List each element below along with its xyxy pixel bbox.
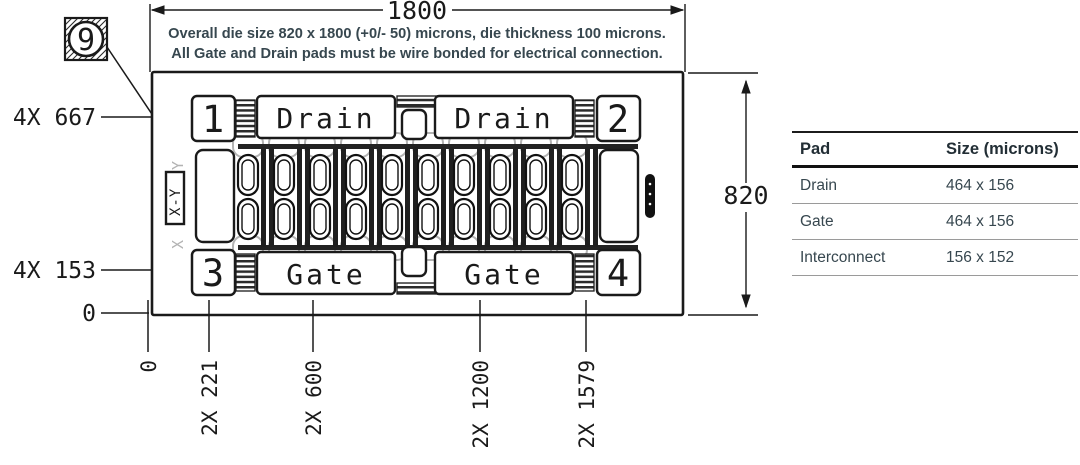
callout-0: 0 <box>82 301 96 327</box>
dim-height-label: 820 <box>723 181 768 210</box>
die-drawing-page: 1800 Overall die size 820 x 1800 (+0/- 5… <box>0 0 1080 465</box>
table-row: Interconnect156 x 152 <box>792 240 1078 276</box>
gate-finger <box>441 147 446 247</box>
bond-hatch-2 <box>575 100 594 137</box>
gate-finger <box>333 147 338 247</box>
gate-finger <box>413 147 418 247</box>
table-header-size: Size (microns) <box>946 140 1070 159</box>
right-interconnect-cap <box>600 150 638 242</box>
cell-pad-size: 156 x 152 <box>946 249 1070 267</box>
marker-dot <box>649 203 652 206</box>
contact-via-outer <box>526 199 546 239</box>
callout-153: 4X 153 <box>13 258 96 284</box>
bond-hatch-1 <box>236 100 255 137</box>
contact-via-outer <box>310 199 330 239</box>
center-interconnect-bottom <box>402 247 426 276</box>
marker-dot <box>649 193 652 196</box>
gate-finger <box>477 147 482 247</box>
contact-via-outer <box>274 155 294 195</box>
note-line-1: Overall die size 820 x 1800 (+0/- 50) mi… <box>168 26 666 42</box>
gate-finger <box>449 147 454 247</box>
contact-via-outer <box>382 199 402 239</box>
bond-hatch-4 <box>575 254 594 291</box>
die-layout-drawing: 1800 Overall die size 820 x 1800 (+0/- 5… <box>0 0 780 465</box>
contact-via-outer <box>490 199 510 239</box>
right-edge-marker-body <box>645 174 655 218</box>
cell-pad-size: 464 x 156 <box>946 213 1070 231</box>
gate-finger <box>405 147 410 247</box>
contact-via-outer <box>418 155 438 195</box>
alignment-ghost-x: X <box>169 240 187 249</box>
ordinate-label: 0 <box>137 360 161 373</box>
bottom-ordinate-dimensions: 02X 2212X 6002X 12002X 1579 <box>137 300 599 449</box>
cell-pad-size: 464 x 156 <box>946 177 1070 195</box>
bond-hatch-3 <box>236 254 255 291</box>
ordinate-label: 2X 221 <box>198 360 222 436</box>
left-interconnect-cap <box>196 150 234 242</box>
contact-via-outer <box>274 199 294 239</box>
center-interconnect-top <box>402 110 426 139</box>
contact-via-outer <box>238 199 258 239</box>
pad-3-label: 3 <box>202 252 224 295</box>
contact-via-outer <box>526 155 546 195</box>
contact-via-outer <box>346 199 366 239</box>
balloon-label: 9 <box>77 23 95 58</box>
drain-pad-left-label: Drain <box>276 102 375 135</box>
gate-finger <box>377 147 382 247</box>
gate-finger <box>521 147 526 247</box>
table-row: Gate464 x 156 <box>792 204 1078 240</box>
contact-via-outer <box>562 199 582 239</box>
table-body: Drain464 x 156Gate464 x 156Interconnect1… <box>792 168 1078 276</box>
pad-4-label: 4 <box>607 252 629 295</box>
contact-via-outer <box>454 155 474 195</box>
contact-via-outer <box>562 155 582 195</box>
alignment-ghost-y: Y <box>169 161 187 170</box>
gate-finger <box>513 147 518 247</box>
gate-finger <box>261 147 266 247</box>
table-header-row: Pad Size (microns) <box>792 133 1078 168</box>
gate-pad-right-label: Gate <box>464 258 543 291</box>
pad-size-table: Pad Size (microns) Drain464 x 156Gate464… <box>792 131 1078 276</box>
alignment-mark-label: X-Y <box>168 188 184 216</box>
pad-1-label: 1 <box>202 98 224 141</box>
contact-via-outer <box>346 155 366 195</box>
table-header-pad: Pad <box>800 140 946 159</box>
ordinate-label: 2X 1579 <box>575 360 599 449</box>
contact-via-outer <box>382 155 402 195</box>
die-body: 1 2 3 4 Drain Drain Gate Gate Y X <box>152 72 683 315</box>
ordinate-label: 2X 600 <box>302 360 326 436</box>
drain-pad-right-label: Drain <box>454 102 553 135</box>
contact-via-outer <box>454 199 474 239</box>
pad-2-label: 2 <box>607 98 629 141</box>
center-hatch-bottom <box>397 283 437 294</box>
table-row: Drain464 x 156 <box>792 168 1078 204</box>
gate-finger <box>369 147 374 247</box>
ordinate-label: 2X 1200 <box>469 360 493 449</box>
contact-via-outer <box>490 155 510 195</box>
contact-via-outer <box>238 155 258 195</box>
gate-finger <box>297 147 302 247</box>
gate-finger <box>593 147 598 247</box>
gate-pad-left-label: Gate <box>286 258 365 291</box>
cell-pad-name: Interconnect <box>800 249 946 267</box>
callout-667: 4X 667 <box>13 105 96 131</box>
gate-finger <box>305 147 310 247</box>
center-hatch-top <box>397 96 437 107</box>
right-edge-marker <box>645 174 655 218</box>
gate-finger <box>585 147 590 247</box>
note-line-2: All Gate and Drain pads must be wire bon… <box>171 46 662 62</box>
gate-finger <box>549 147 554 247</box>
cell-pad-name: Drain <box>800 177 946 195</box>
contact-via-outer <box>418 199 438 239</box>
gate-finger <box>269 147 274 247</box>
contact-via-outer <box>310 155 330 195</box>
gate-finger <box>341 147 346 247</box>
dim-width-label: 1800 <box>387 0 447 25</box>
cell-pad-name: Gate <box>800 213 946 231</box>
marker-dot <box>649 183 652 186</box>
gate-finger <box>557 147 562 247</box>
gate-finger <box>485 147 490 247</box>
